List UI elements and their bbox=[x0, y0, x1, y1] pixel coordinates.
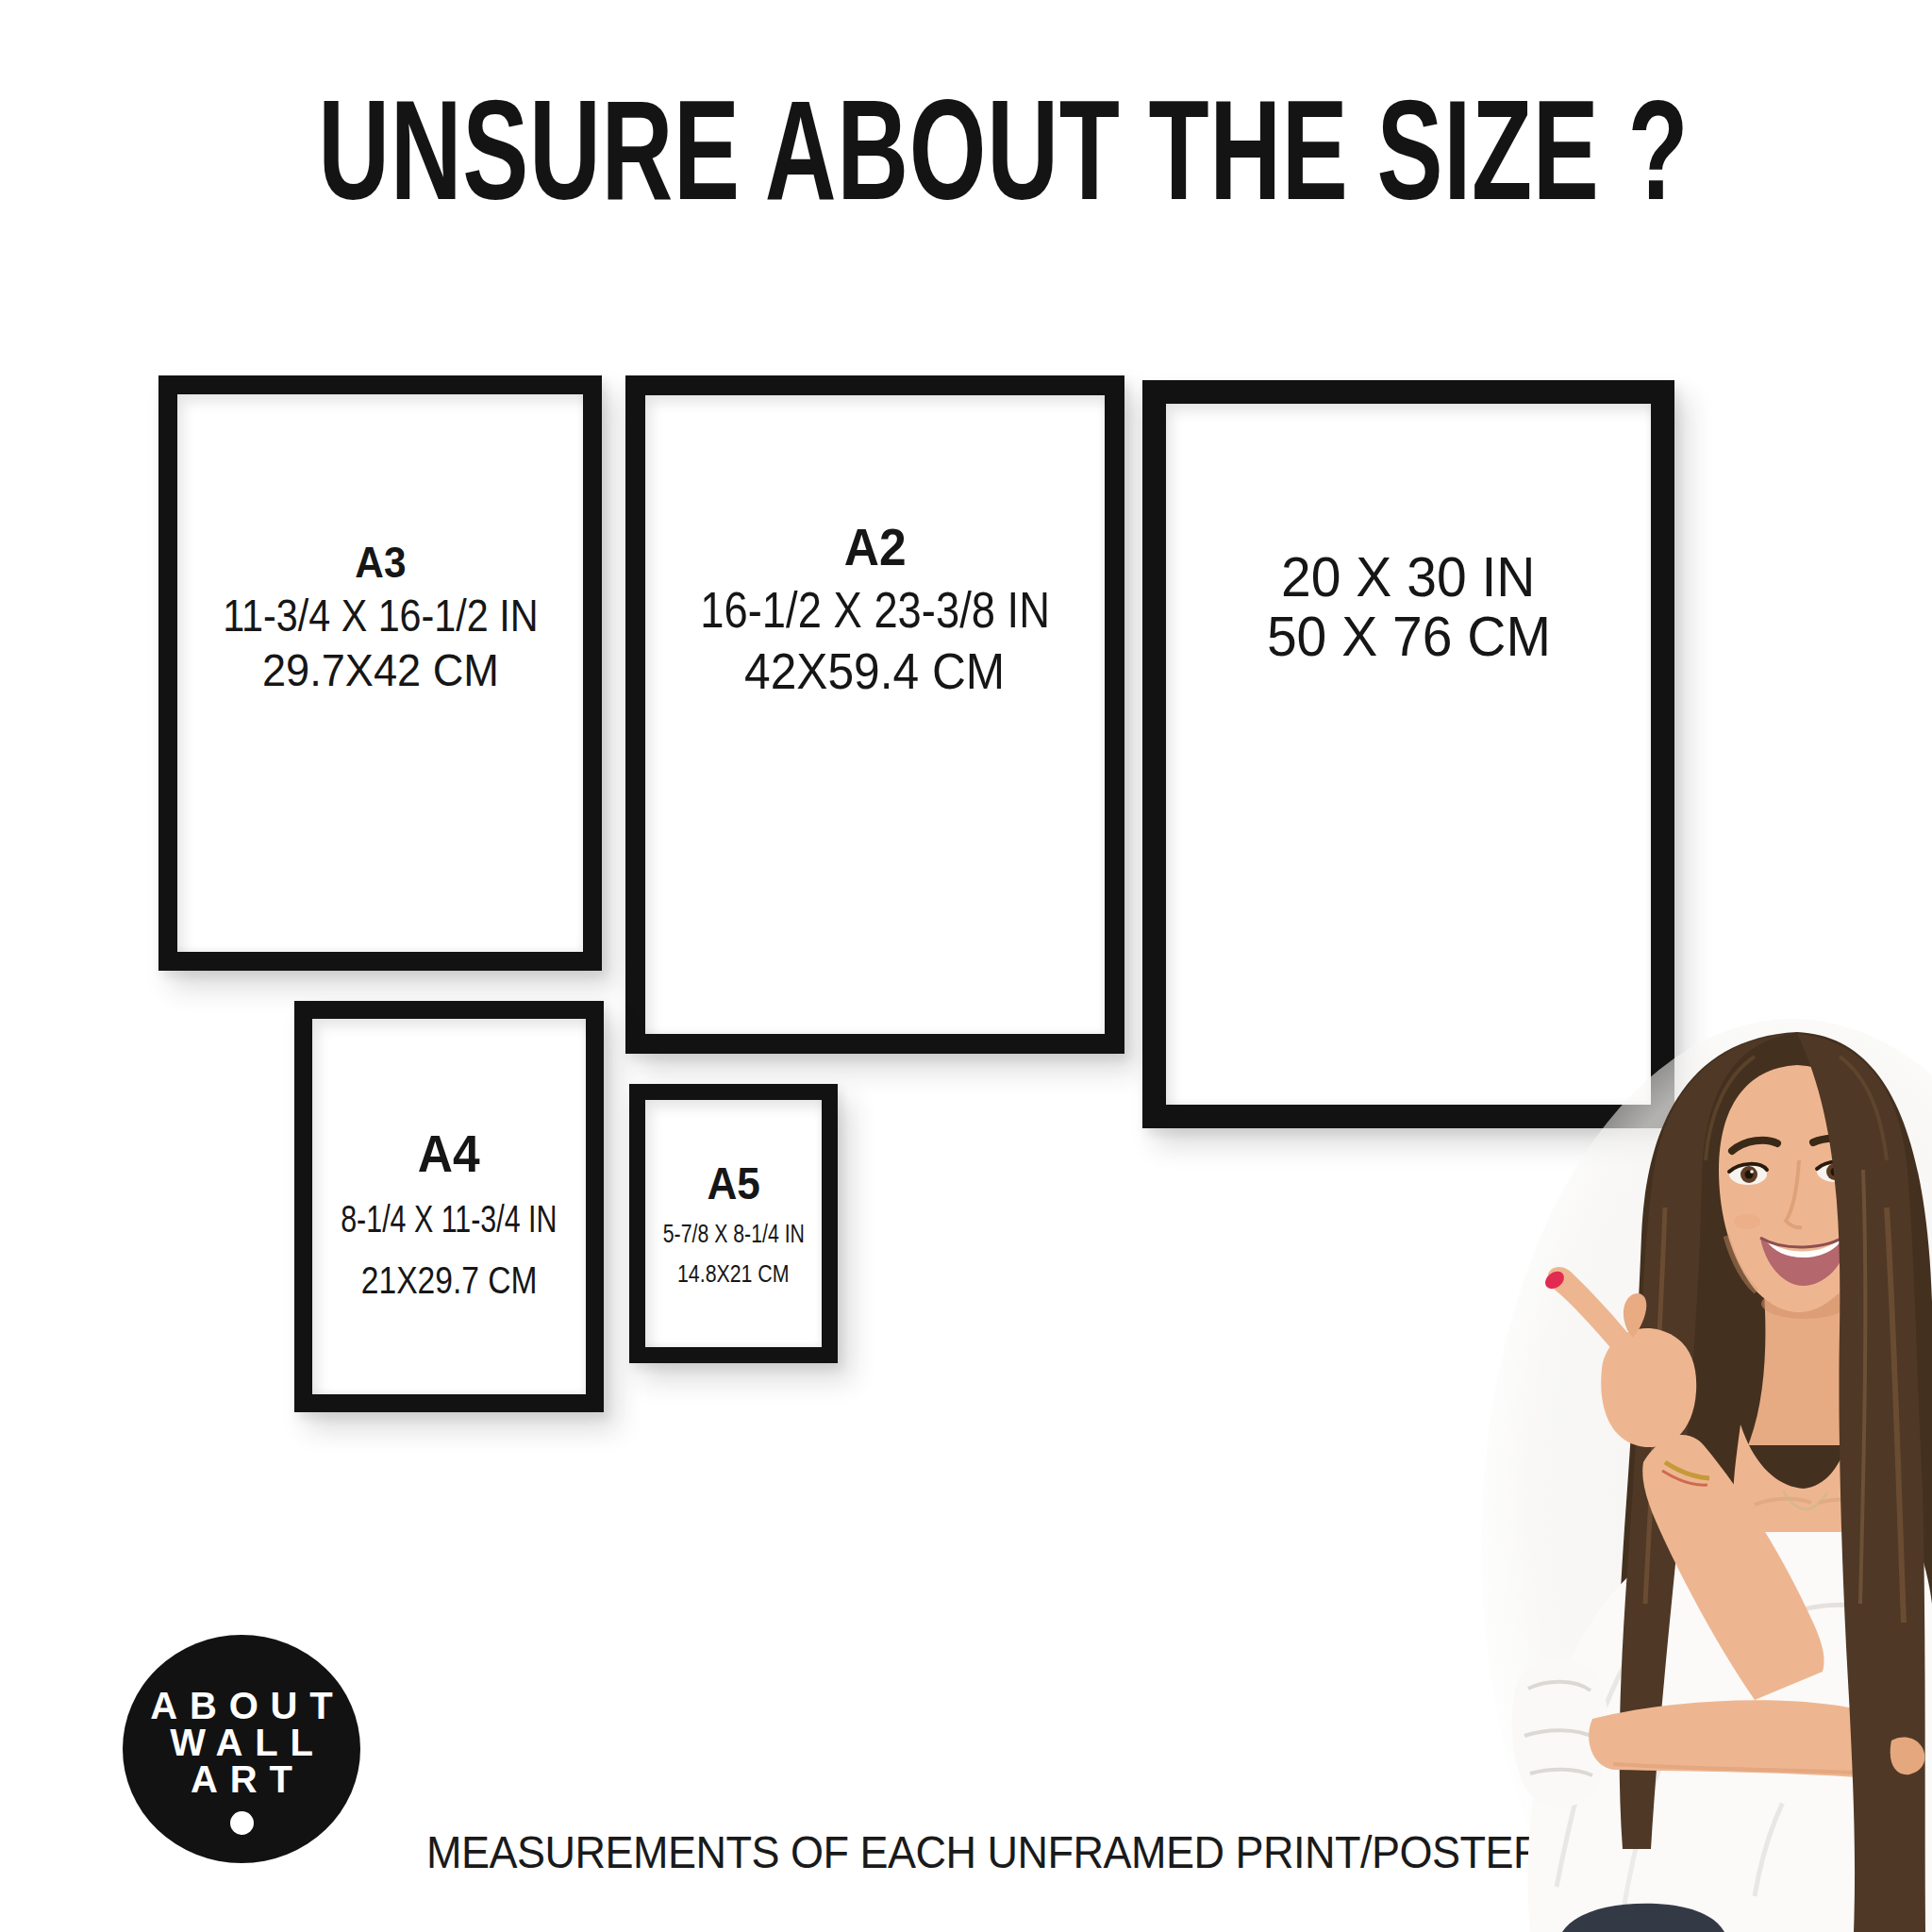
frame-a5-label: A5 bbox=[707, 1155, 759, 1213]
frame-a5-text: A5 5-7/8 X 8-1/4 IN 14.8X21 CM bbox=[645, 1100, 822, 1292]
frame-a3-label: A3 bbox=[355, 536, 406, 589]
frame-a5: A5 5-7/8 X 8-1/4 IN 14.8X21 CM bbox=[629, 1084, 838, 1363]
frame-a4: A4 8-1/4 X 11-3/4 IN 21X29.7 CM bbox=[294, 1001, 604, 1412]
frame-20x30-size-cm: 50 X 76 CM bbox=[1266, 608, 1550, 666]
frame-a2-size-inches: 16-1/2 X 23-3/8 IN bbox=[700, 578, 1050, 641]
frame-a5-size-cm: 14.8X21 CM bbox=[677, 1255, 790, 1292]
brand-logo-line-1: ABOUT bbox=[138, 1688, 344, 1724]
frame-a2-label: A2 bbox=[844, 516, 907, 578]
frame-a3: A3 11-3/4 X 16-1/2 IN 29.7X42 CM bbox=[158, 375, 602, 971]
frame-a4-text: A4 8-1/4 X 11-3/4 IN 21X29.7 CM bbox=[312, 1019, 586, 1311]
frame-a3-size-cm: 29.7X42 CM bbox=[262, 643, 499, 697]
brand-logo: ABOUT WALL ART bbox=[123, 1635, 360, 1863]
brand-logo-line-2: WALL bbox=[158, 1724, 325, 1761]
model-photo bbox=[1472, 1019, 1932, 1932]
frame-a4-label: A4 bbox=[418, 1119, 480, 1189]
brand-logo-line-3: ART bbox=[178, 1761, 304, 1798]
footer-caption: MEASUREMENTS OF EACH UNFRAMED PRINT/POST… bbox=[426, 1828, 1370, 1878]
frame-a2-size-cm: 42X59.4 CM bbox=[744, 641, 1005, 701]
frame-a4-size-cm: 21X29.7 CM bbox=[361, 1249, 538, 1311]
frame-a3-text: A3 11-3/4 X 16-1/2 IN 29.7X42 CM bbox=[177, 394, 583, 697]
frame-a2-text: A2 16-1/2 X 23-3/8 IN 42X59.4 CM bbox=[645, 395, 1105, 701]
page-title: UNSURE ABOUT THE SIZE ? bbox=[318, 79, 1671, 221]
frame-a2: A2 16-1/2 X 23-3/8 IN 42X59.4 CM bbox=[625, 375, 1124, 1054]
frame-20x30-size-inches: 20 X 30 IN bbox=[1281, 547, 1535, 608]
frame-20x30-text: 20 X 30 IN 50 X 76 CM bbox=[1166, 404, 1651, 666]
size-guide-canvas: UNSURE ABOUT THE SIZE ? A3 11-3/4 X 16-1… bbox=[0, 0, 1932, 1932]
brand-logo-dot bbox=[230, 1811, 254, 1835]
frame-a3-size-inches: 11-3/4 X 16-1/2 IN bbox=[223, 589, 538, 643]
frame-a5-size-inches: 5-7/8 X 8-1/4 IN bbox=[662, 1213, 804, 1255]
frame-20x30: 20 X 30 IN 50 X 76 CM bbox=[1142, 380, 1674, 1128]
frame-a4-size-inches: 8-1/4 X 11-3/4 IN bbox=[341, 1189, 557, 1249]
